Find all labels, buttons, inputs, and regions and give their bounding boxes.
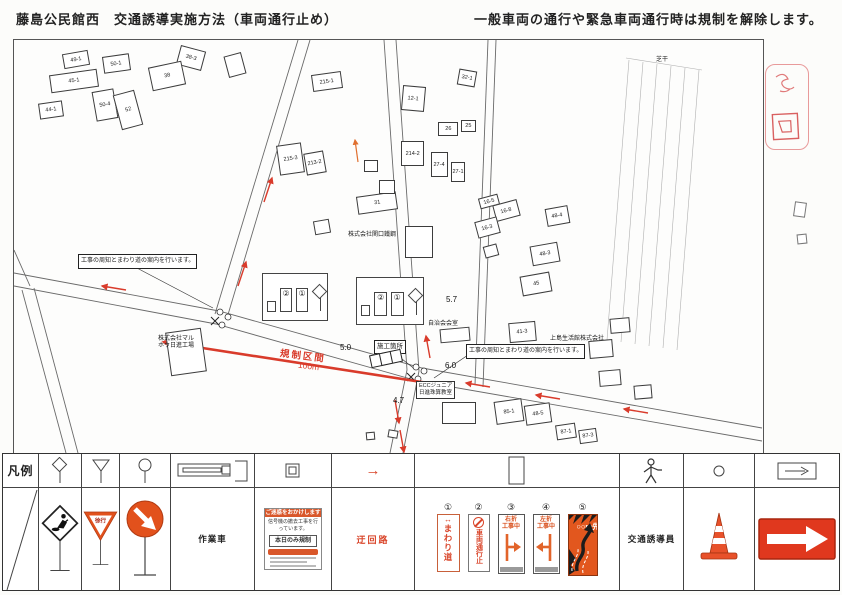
- building: 215-3: [276, 142, 305, 175]
- map-text-label: 株式会社関口鐵鋼: [348, 232, 396, 239]
- map-text-label: 上島生活館株式会社: [550, 336, 604, 343]
- building: 25: [461, 120, 476, 132]
- worker-sign: [39, 488, 82, 590]
- notice-header: ご迷惑をおかけします: [265, 509, 321, 517]
- sign-1-icon: ①: [391, 292, 404, 316]
- building: 87-3: [578, 428, 598, 444]
- sign-1: ① ↔ まわり道: [437, 502, 460, 572]
- diamond-symbol-icon: [39, 454, 82, 488]
- building: 48-5: [524, 402, 553, 425]
- sign-footer-band: [535, 567, 558, 572]
- building: 87-1: [555, 423, 577, 441]
- lane-shift-graphic: ○○m先: [569, 515, 597, 575]
- road-width-label: 4.7: [393, 396, 404, 405]
- building: [598, 369, 621, 387]
- direction-arrow-board: [758, 518, 836, 560]
- notice-body: 信号機の撤去工事を行っています。: [265, 517, 321, 534]
- map-text-label: 自治会会室: [428, 321, 458, 328]
- notice-board-cell: ご迷惑をおかけします 信号機の撤去工事を行っています。 本日のみ規制: [255, 488, 332, 590]
- building: 32-1: [457, 69, 478, 88]
- legend-title: 凡例: [7, 462, 33, 479]
- arrow-board-cell: [755, 488, 839, 590]
- triangle-symbol-icon: [82, 454, 120, 488]
- board-icon: [361, 305, 370, 316]
- detour-arrow-symbol-icon: →: [332, 454, 415, 488]
- work-vehicle-label: 作業車: [198, 533, 227, 545]
- sign-layout-inset-right: ② ①: [356, 277, 424, 325]
- building: 27-4: [431, 152, 448, 177]
- building: 26: [438, 122, 458, 136]
- cone-symbol-icon: [684, 454, 755, 488]
- building: [633, 384, 652, 400]
- sign-layout-inset-left: ② ①: [262, 273, 328, 321]
- approval-stamp: [765, 64, 809, 150]
- road-width-label: 5.7: [446, 295, 457, 304]
- board-icon: [267, 301, 276, 312]
- sign-2: ② 車両通行止: [468, 502, 490, 572]
- left-turn-arrow-icon: [534, 531, 558, 563]
- board-symbol-icon: [255, 454, 332, 488]
- legend-slash-cell: [3, 488, 39, 590]
- building: [165, 328, 207, 377]
- detour-notice-callout-left: 工事の周知とまわり道の案内を行います。: [78, 254, 197, 269]
- detour-notice-callout-right: 工事の周知とまわり道の案内を行います。: [466, 344, 585, 359]
- traffic-cone-cell: [684, 488, 755, 590]
- sign-3: ③ 右折 工事中: [498, 502, 525, 574]
- notice-fine-print: [270, 565, 316, 567]
- field-strips: [607, 58, 702, 350]
- sign-2-text: 車両通行止: [474, 529, 484, 564]
- legend-title-cell: 凡例: [3, 454, 39, 488]
- building: 44-1: [38, 100, 64, 119]
- building: [364, 160, 378, 172]
- guard-symbol-icon: [620, 454, 684, 488]
- slow-sign: 徐行: [82, 488, 120, 590]
- no-entry-icon: [473, 517, 484, 528]
- building: 213-2: [303, 150, 327, 175]
- road-width-label: 5.0: [340, 343, 351, 352]
- building: [313, 219, 331, 236]
- right-turn-arrow-icon: [499, 531, 523, 563]
- warning-sign-icon: [312, 286, 323, 312]
- notice-fine-print: [270, 561, 307, 563]
- legend-table: 凡例 →: [2, 453, 840, 591]
- notice-restriction: 本日のみ規制: [269, 535, 317, 547]
- map-area: 49-150-138-345-13850-444-152215-112-132-…: [13, 39, 764, 455]
- notice-board: ご迷惑をおかけします 信号機の撤去工事を行っています。 本日のみ規制: [264, 508, 322, 570]
- sign-2-icon: ②: [374, 292, 387, 316]
- building: 41-3: [508, 321, 537, 343]
- page-title: 藤島公民館西 交通誘導実施方法（車両通行止め）: [16, 9, 338, 28]
- traffic-guide-cell: 交通誘導員: [620, 488, 684, 590]
- building: [405, 226, 433, 258]
- signboard-symbol-icon: [415, 454, 620, 488]
- building: 27-1: [451, 162, 465, 182]
- notice-date-band: [268, 549, 318, 555]
- map-text-label: ホウ日進工場: [158, 343, 194, 350]
- traffic-plan-document: 藤島公民館西 交通誘導実施方法（車両通行止め） 一般車両の通行や緊急車両通行時は…: [0, 0, 842, 595]
- header-note: 一般車両の通行や緊急車両通行時は規制を解除します。: [474, 9, 823, 28]
- building: [387, 429, 398, 439]
- ecc-school-label: ECCジュニア 日進珠算教室: [416, 381, 455, 399]
- sign-4: ④ 左折 工事中: [533, 502, 560, 574]
- arrow-board-symbol-icon: [755, 454, 839, 488]
- map-fragment: [797, 234, 808, 245]
- map-fragment: [793, 201, 807, 218]
- traffic-guide-label: 交通誘導員: [628, 533, 676, 545]
- sign-footer-band: [500, 567, 523, 572]
- building: [609, 317, 630, 334]
- detour-route-cell: 迂回路: [332, 488, 415, 590]
- work-vehicle-symbol-icon: [171, 454, 255, 488]
- detour-route-label: 迂回路: [356, 533, 389, 546]
- building: [379, 180, 395, 194]
- work-vehicle-cell: 作業車: [171, 488, 255, 590]
- numbered-signs-cell: ① ↔ まわり道 ② 車両通行止 ③ 右折: [415, 488, 620, 590]
- map-text-label: 芝干: [656, 57, 668, 64]
- building: [366, 432, 376, 441]
- road-width-label: 6.0: [445, 361, 456, 370]
- sign-1-icon: ①: [296, 288, 308, 312]
- sign-5: ⑤ ○○m先: [568, 502, 598, 576]
- building: [442, 402, 476, 424]
- circle-symbol-icon: [120, 454, 171, 488]
- map-text-label: 株式会社マル: [158, 336, 194, 343]
- building: 214-2: [401, 141, 424, 166]
- building: [439, 327, 470, 344]
- building: 12-1: [401, 85, 426, 112]
- double-arrow-icon: ↔: [444, 515, 452, 524]
- sign-2-icon: ②: [280, 288, 292, 312]
- stamp-marks: [766, 65, 806, 147]
- notice-fine-print: [270, 557, 316, 559]
- diagonal-arrow-sign: [120, 488, 171, 590]
- traffic-cone-icon: [693, 511, 745, 567]
- sign-1-text: まわり道: [442, 524, 454, 562]
- building: 85-1: [494, 398, 525, 425]
- warning-sign-icon: [408, 290, 419, 316]
